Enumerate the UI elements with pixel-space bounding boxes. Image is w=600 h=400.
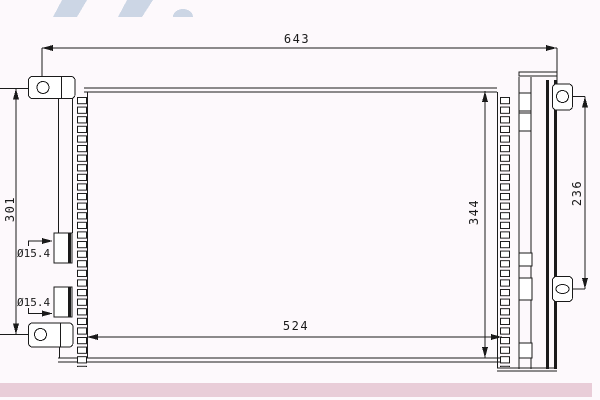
dim-core-height-label: 344 xyxy=(467,199,481,225)
arrow-right-icon xyxy=(546,45,557,51)
arrow-down-icon xyxy=(582,278,588,289)
dim-core-width-label: 524 xyxy=(283,319,309,333)
bracket-bottom-right xyxy=(553,277,573,302)
watermark-stroke-2 xyxy=(118,0,153,17)
bracket-bottom-left xyxy=(29,323,74,347)
arrow-down-icon xyxy=(13,324,19,335)
fitting-callout-top: Ø15.4 xyxy=(17,238,53,260)
drawing-canvas: 643 301 524 344 236 Ø15.4 Ø15.4 xyxy=(0,0,600,400)
arrow-right-icon xyxy=(42,238,53,244)
condenser-technical-drawing: 643 301 524 344 236 Ø15.4 Ø15.4 xyxy=(0,0,600,400)
footer-band xyxy=(0,383,592,397)
right-comb xyxy=(500,97,510,367)
fitting-diameter-bottom-label: Ø15.4 xyxy=(17,296,50,309)
bracket-top-left xyxy=(29,77,76,99)
fitting-diameter-top-label: Ø15.4 xyxy=(17,247,50,260)
right-tank-plate xyxy=(519,77,532,369)
mounting-hole-bottom-left xyxy=(35,329,47,341)
dim-left-span-label: 301 xyxy=(3,196,17,222)
right-header-fins xyxy=(500,97,510,367)
dimension-core-height: 344 xyxy=(467,91,488,358)
mounting-hole-top-left xyxy=(37,82,49,94)
watermark-logo xyxy=(53,0,193,17)
arrow-right-icon xyxy=(42,311,53,317)
dim-overall-width-label: 643 xyxy=(284,32,310,46)
arrow-left-icon xyxy=(42,45,53,51)
left-header-fins xyxy=(77,97,87,367)
arrow-down-icon xyxy=(482,347,488,358)
mounting-hole-top-right xyxy=(557,91,569,103)
dimension-overall-width: 643 xyxy=(42,32,557,84)
dim-right-span-label: 236 xyxy=(570,180,584,206)
arrow-up-icon xyxy=(582,97,588,108)
fitting-callout-bottom: Ø15.4 xyxy=(17,296,53,317)
dimension-core-width: 524 xyxy=(87,319,502,340)
pipe-fitting-bottom xyxy=(54,287,72,317)
pipe-fitting-top xyxy=(54,233,72,263)
dimension-right-bracket-span: 236 xyxy=(570,97,588,290)
arrow-up-icon xyxy=(13,89,19,100)
arrow-up-icon xyxy=(482,91,488,102)
arrow-left-icon xyxy=(87,334,98,340)
watermark-dome xyxy=(173,9,193,17)
inlet-pipe-channel xyxy=(59,98,73,358)
mounting-hole-bottom-right xyxy=(556,285,569,294)
bracket-top-right xyxy=(553,84,573,110)
left-comb xyxy=(77,97,87,367)
watermark-stroke-1 xyxy=(53,0,87,17)
